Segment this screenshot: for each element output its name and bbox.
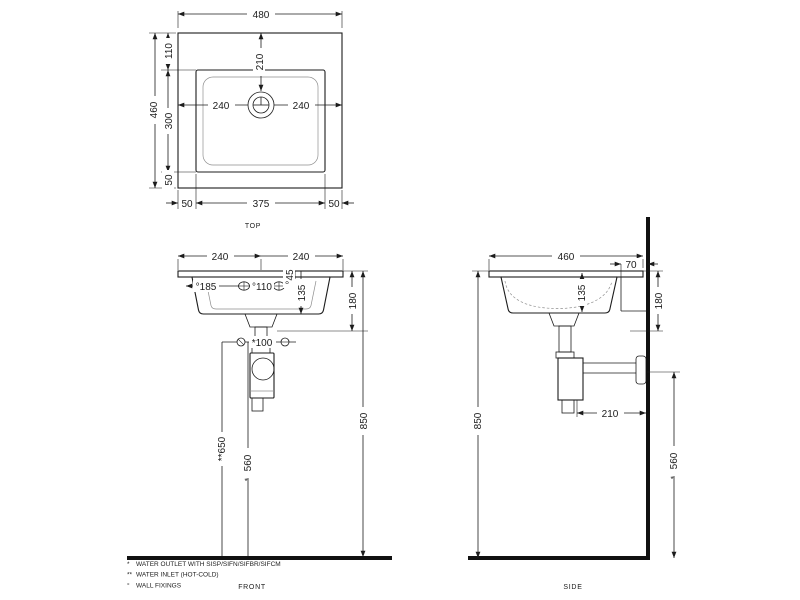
- dim-label-185: °185: [193, 280, 219, 293]
- dim-text-560-front: 560: [243, 454, 254, 471]
- dim-text-110: 110: [164, 43, 175, 59]
- dim-label-70: 70: [623, 258, 640, 271]
- technical-drawing-sheet: 480 460 110 300 50 210: [0, 0, 800, 600]
- trap-bottom-side: [562, 400, 574, 413]
- dim-label-480: 480: [247, 8, 275, 21]
- dim-label-210-top: 210: [253, 48, 266, 76]
- dim-label-135-front: 135: [295, 279, 308, 306]
- dim-text-100: *100: [252, 338, 273, 349]
- dim-label-560-side: 560: [667, 446, 680, 476]
- dim-label-240-left-front: 240: [207, 250, 234, 263]
- bottle-trap-side: [558, 358, 583, 400]
- wall-line: [646, 217, 650, 559]
- dim-text-70: 70: [625, 260, 637, 271]
- wall-fixing-right-icon: [281, 338, 289, 346]
- dim-label-560-front: 560: [241, 448, 254, 478]
- dim-text-300: 300: [164, 112, 175, 129]
- waste-pipe-front: [252, 398, 263, 411]
- dim-text-135-front: 135: [297, 284, 308, 301]
- dim-label-45: °45: [283, 265, 296, 288]
- dim-text-210-side: 210: [602, 409, 619, 420]
- dim-label-110-front: °110: [250, 280, 274, 293]
- dim-text-240-right-front: 240: [293, 252, 310, 263]
- dim-label-240-right-top: 240: [288, 99, 315, 112]
- drain-flange-front: [245, 314, 277, 327]
- side-body-outline: [501, 277, 617, 313]
- dim-label-300: 300: [162, 108, 175, 134]
- dim-label-210-side: 210: [597, 407, 624, 420]
- dim-label-375: 375: [247, 197, 275, 210]
- front-view-caption: FRONT: [238, 584, 266, 591]
- dim-label-650: **650: [215, 432, 228, 466]
- dim-text-180-front: 180: [348, 292, 359, 309]
- dim-text-210-top: 210: [255, 53, 266, 70]
- top-view-caption: TOP: [245, 223, 261, 230]
- drain-tailpipe-side: [559, 326, 571, 352]
- dim-marker-560-front: *: [244, 477, 247, 486]
- trap-inspection-cap-icon: [252, 358, 274, 380]
- top-view: 480 460 110 300 50 210: [147, 8, 354, 230]
- dim-label-180-front: 180: [346, 287, 359, 314]
- dim-text-180-side: 180: [654, 292, 665, 309]
- wall-fixing-left-icon: [237, 338, 245, 346]
- dim-text-50-bottom-left: 50: [181, 199, 193, 210]
- dim-text-650: **650: [217, 436, 228, 461]
- dim-text-135-side: 135: [577, 284, 588, 301]
- dim-label-180-side: 180: [652, 287, 665, 314]
- dim-text-110-front: °110: [252, 282, 272, 293]
- trap-nut-side: [556, 352, 574, 358]
- dim-label-240-left-top: 240: [208, 99, 235, 112]
- wall-escutcheon: [636, 356, 646, 384]
- footnote-3-text: WALL FIXINGS: [136, 583, 182, 590]
- side-bowl-profile: [505, 281, 612, 309]
- top-basin-cutout-outline: [196, 70, 325, 172]
- dim-text-240-left-top: 240: [213, 101, 230, 112]
- dim-label-850-front: 850: [357, 407, 370, 435]
- dim-text-460-side: 460: [558, 252, 575, 263]
- dim-label-50-side: 50: [162, 170, 175, 190]
- dim-text-50-bottom-right: 50: [328, 199, 340, 210]
- dim-text-460: 460: [149, 101, 160, 118]
- side-view: 460 70 135 180 850: [468, 217, 680, 591]
- dim-text-560-side: 560: [669, 452, 680, 469]
- dim-label-135-side: 135: [575, 279, 588, 306]
- water-inlet-left-icon: [238, 282, 250, 290]
- footnote-1-text: WATER OUTLET WITH SISP/SIFN/SIFBR/SIFCM: [136, 561, 281, 568]
- dim-label-100: *100: [249, 336, 276, 349]
- dim-label-460: 460: [147, 96, 160, 124]
- dim-label-110: 110: [162, 38, 175, 64]
- footnote-1-marker: *: [127, 561, 130, 568]
- dim-text-45: °45: [285, 269, 296, 285]
- dim-label-460-side: 460: [552, 250, 580, 263]
- washbasin-dimension-drawing: 480 460 110 300 50 210: [0, 0, 800, 600]
- footnote-2-marker: **: [127, 572, 133, 579]
- dim-text-240-right-top: 240: [293, 101, 310, 112]
- front-view: 240 240 °185 °110 °45 135: [127, 250, 392, 591]
- dim-text-850-front: 850: [359, 412, 370, 429]
- dim-label-850-side: 850: [471, 407, 484, 435]
- dim-text-375: 375: [253, 199, 270, 210]
- dim-label-240-right-front: 240: [288, 250, 315, 263]
- side-rim-outline: [489, 271, 643, 277]
- dim-text-185: °185: [196, 282, 217, 293]
- dim-text-240-left-front: 240: [212, 252, 229, 263]
- dim-text-50-side: 50: [164, 174, 175, 186]
- front-rim-outline: [178, 271, 343, 277]
- dim-marker-560-side: *: [670, 475, 673, 484]
- faucet-hole-icon: [248, 92, 274, 118]
- footnote-3-marker: °: [127, 582, 130, 590]
- top-bowl-inner-edge: [203, 77, 318, 165]
- dim-text-480: 480: [253, 10, 270, 21]
- footnote-2-text: WATER INLET (HOT-COLD): [136, 572, 219, 579]
- dim-text-850-side: 850: [473, 412, 484, 429]
- drain-flange-side: [549, 313, 579, 326]
- side-view-caption: SIDE: [563, 584, 582, 591]
